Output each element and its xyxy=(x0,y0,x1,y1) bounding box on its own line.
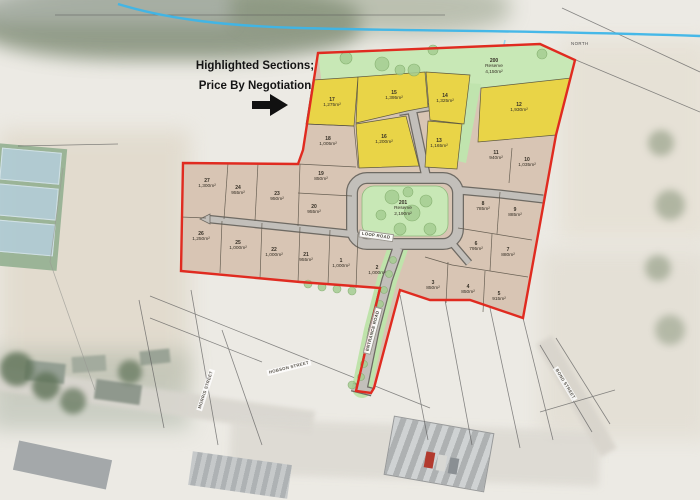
lot-label-24: 24955m² xyxy=(231,185,245,197)
lot-label-25: 251,000m² xyxy=(229,240,247,252)
lot-label-15: 151,395m² xyxy=(385,90,403,102)
lot-label-14: 141,325m² xyxy=(436,93,454,105)
lot-label-10: 101,035m² xyxy=(518,157,536,169)
lot-label-2: 21,000m² xyxy=(368,265,386,277)
lot-label-13: 131,165m² xyxy=(430,138,448,150)
lot-label-17: 171,275m² xyxy=(323,97,341,109)
title-line-1: Highlighted Sections; xyxy=(160,57,350,77)
lot-label-6: 6795m² xyxy=(469,241,483,253)
entrance-road-label: ENTRANCE ROAD xyxy=(363,307,383,355)
lot-label-26: 261,250m² xyxy=(192,231,210,243)
page-title: Highlighted Sections; Price By Negotiati… xyxy=(160,57,350,96)
lot-label-21: 21955m² xyxy=(299,252,313,264)
reserve-label-200: 200Reserve4,150m² xyxy=(485,58,503,76)
lot-label-22: 221,000m² xyxy=(265,247,283,259)
reserve-label-201: 201Reserve2,190m² xyxy=(394,200,412,218)
lot-label-23: 23950m² xyxy=(270,191,284,203)
lot-label-5: 5915m² xyxy=(492,291,506,303)
street-label-bond: BOND STREET xyxy=(552,366,577,402)
lot-label-4: 4850m² xyxy=(461,284,475,296)
lot-label-12: 121,930m² xyxy=(510,102,528,114)
lot-label-9: 9885m² xyxy=(508,207,522,219)
lot-label-1: 11,000m² xyxy=(332,258,350,270)
lot-label-19: 19850m² xyxy=(314,171,328,183)
title-line-2: Price By Negotiation xyxy=(160,77,350,97)
north-label: NORTH xyxy=(571,41,589,46)
lot-label-8: 8785m² xyxy=(476,201,490,213)
lot-label-11: 11940m² xyxy=(489,150,503,162)
subdivision-plan-image: Highlighted Sections; Price By Negotiati… xyxy=(0,0,700,500)
street-label-hobson: HOBSON STREET xyxy=(266,359,311,376)
street-label-morris: MORRIS STREET xyxy=(196,368,215,411)
lot-label-20: 20955m² xyxy=(307,204,321,216)
lot-label-3: 3850m² xyxy=(426,280,440,292)
lot-label-7: 7880m² xyxy=(501,247,515,259)
lot-label-16: 161,200m² xyxy=(375,134,393,146)
lot-label-18: 181,005m² xyxy=(319,136,337,148)
loop-road-label: LOOP ROAD xyxy=(358,229,393,242)
lot-label-27: 271,300m² xyxy=(198,178,216,190)
labels-layer: Highlighted Sections; Price By Negotiati… xyxy=(0,0,700,500)
